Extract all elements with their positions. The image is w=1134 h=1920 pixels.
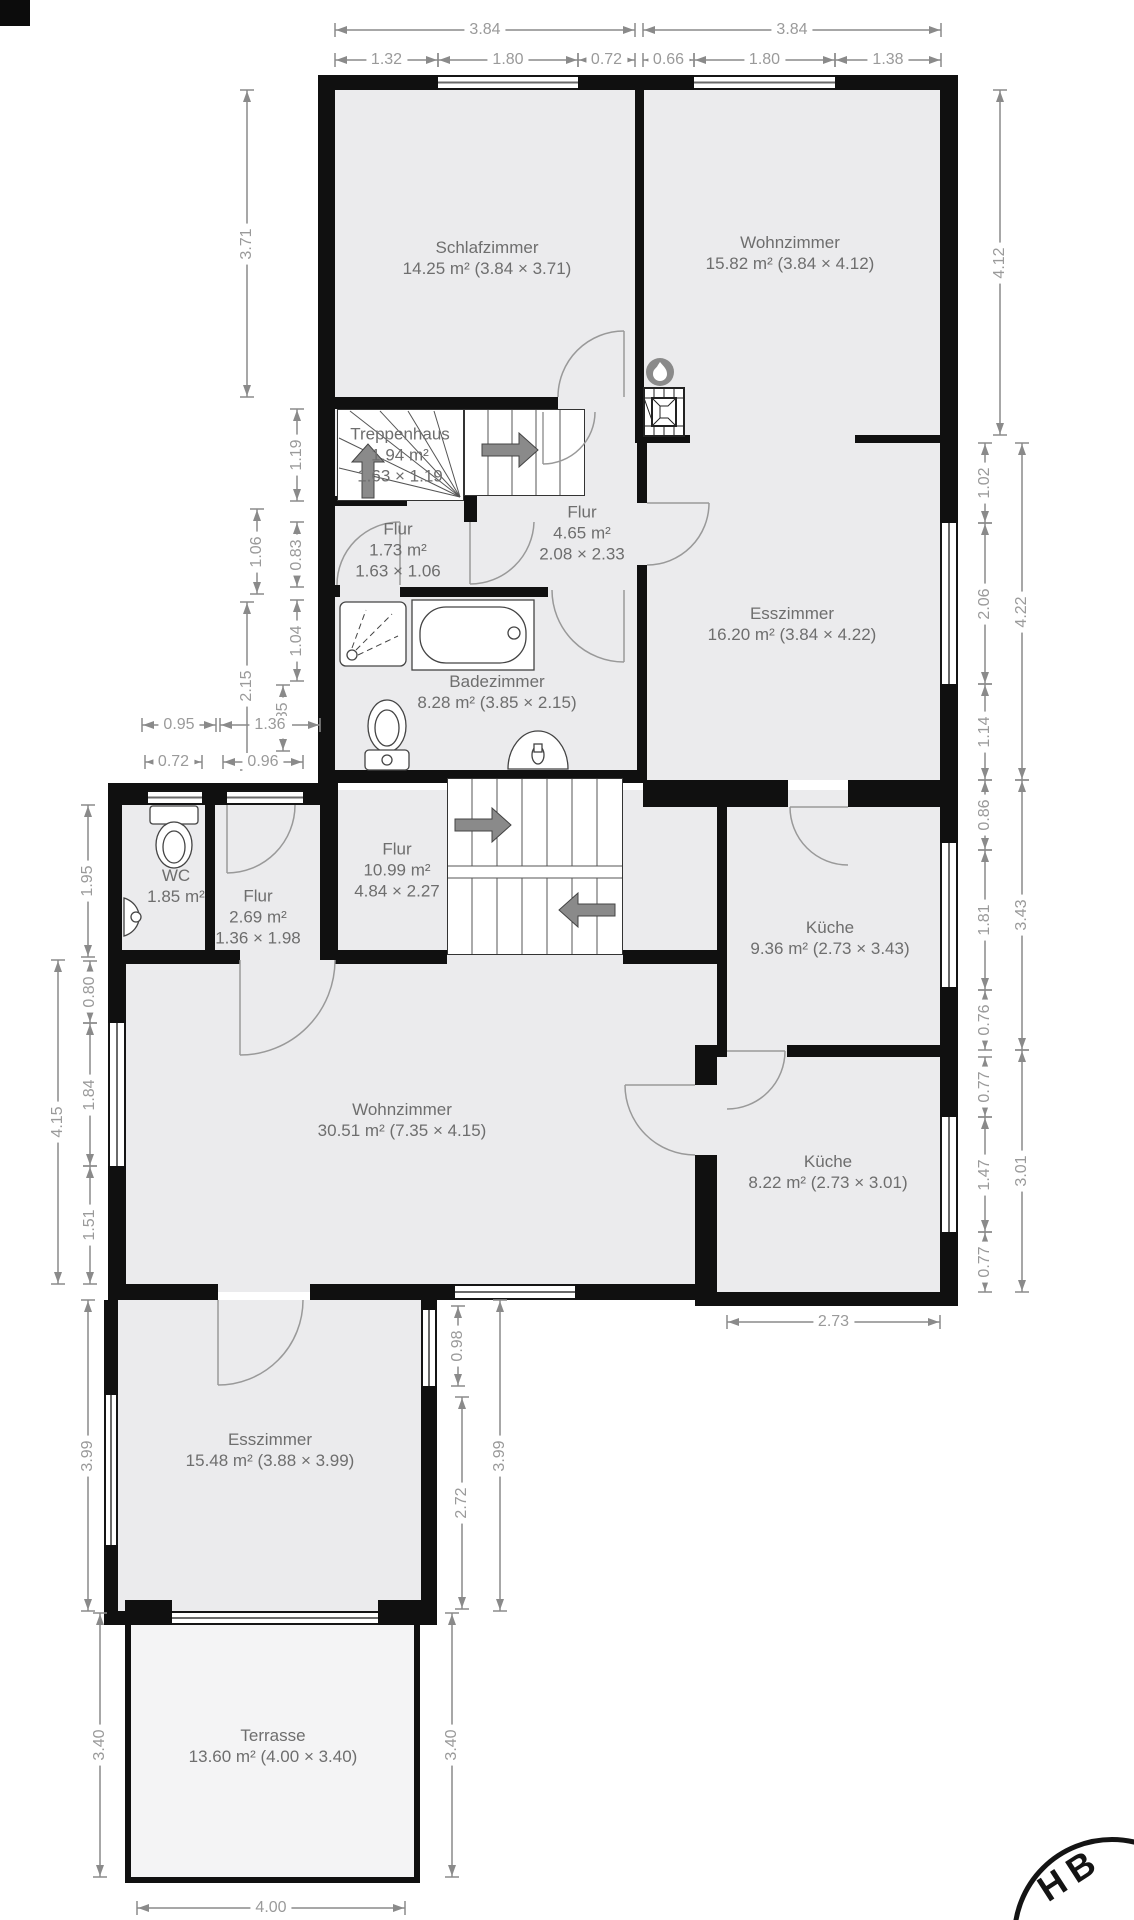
wall [623, 950, 727, 964]
dimension-label: 2.15 [238, 665, 256, 706]
window [940, 843, 958, 987]
dimension-label: 1.32 [366, 51, 407, 69]
stair-run-upper [464, 409, 585, 496]
dimension-label: 1.80 [487, 51, 528, 69]
window [227, 790, 303, 805]
room-size: 1.63 × 1.06 [355, 561, 441, 582]
dimension-label: 3.99 [79, 1435, 97, 1476]
dimension-label: 1.14 [976, 711, 994, 752]
room-label-terrasse: Terrasse13.60 m² (4.00 × 3.40) [189, 1725, 358, 1767]
wall [695, 1155, 717, 1292]
dimension-label: 2.73 [813, 1313, 854, 1331]
window [694, 75, 835, 90]
room-label-badezimmer: Badezimmer8.28 m² (3.85 × 2.15) [417, 671, 576, 713]
wall [108, 1284, 218, 1300]
room-name: Esszimmer [186, 1429, 355, 1450]
room-area: 2.69 m² [215, 907, 301, 928]
room-label-schlafzimmer: Schlafzimmer14.25 m² (3.84 × 3.71) [403, 237, 572, 279]
wall [318, 75, 958, 90]
dimension-label: 1.84 [81, 1074, 99, 1115]
terrace-wall [125, 1615, 131, 1883]
room-name: Flur [354, 839, 440, 860]
room-label-wohnzimmer-top: Wohnzimmer15.82 m² (3.84 × 4.12) [706, 232, 875, 274]
dimension-label: 1.80 [744, 51, 785, 69]
room-label-flur-og: Flur4.65 m²2.08 × 2.33 [539, 502, 625, 565]
dimension-label: 1.51 [81, 1204, 99, 1245]
wall [635, 90, 644, 443]
room-area: 10.99 m² [354, 860, 440, 881]
room-size: 1.36 × 1.98 [215, 928, 301, 949]
room-area: 1.73 m² [355, 540, 441, 561]
room-name: Terrasse [189, 1725, 358, 1746]
terrace-door-window [172, 1611, 378, 1625]
wall [643, 435, 690, 443]
wall [320, 777, 338, 960]
dimension-label: 0.98 [449, 1325, 467, 1366]
room-area: 14.25 m² (3.84 × 3.71) [403, 258, 572, 279]
window [940, 523, 958, 684]
dimension-label: 1.04 [288, 620, 306, 661]
dimension-label: 2.72 [453, 1482, 471, 1523]
dimension-label: 0.72 [153, 753, 194, 771]
room-name: WC [147, 865, 205, 886]
dimension-label: 0.96 [242, 753, 283, 771]
dimension-label: 3.43 [1013, 894, 1031, 935]
room-label-esszimmer-top: Esszimmer16.20 m² (3.84 × 4.22) [708, 603, 877, 645]
room-name: Wohnzimmer [318, 1099, 487, 1120]
dimension-label: 3.84 [771, 21, 812, 39]
stamp: HB [984, 1805, 1134, 1920]
dimension-label: 0.77 [976, 1241, 994, 1282]
dimension-label: 3.71 [238, 223, 256, 264]
dimension-label: 0.76 [976, 999, 994, 1040]
room-name: Küche [748, 1151, 907, 1172]
dimension-label: 0.80 [81, 971, 99, 1012]
stair-main [447, 778, 623, 955]
window [421, 1310, 437, 1386]
wall [400, 587, 548, 597]
dimension-label: 3.84 [464, 21, 505, 39]
wall [318, 90, 335, 783]
dimension-label: 1.47 [976, 1154, 994, 1195]
window [148, 790, 202, 805]
room-label-esszimmer-eg: Esszimmer15.48 m² (3.88 × 3.99) [186, 1429, 355, 1471]
room-label-kueche-936: Küche9.36 m² (2.73 × 3.43) [750, 917, 909, 959]
room-name: Esszimmer [708, 603, 877, 624]
room-size: 1.63 × 1.19 [350, 466, 450, 487]
room-name: Flur [215, 886, 301, 907]
room-size: 2.08 × 2.33 [539, 544, 625, 565]
room-name: Treppenhaus [350, 424, 450, 445]
dimension-label: 1.38 [867, 51, 908, 69]
wall [643, 780, 788, 807]
dimension-label: 0.86 [976, 794, 994, 835]
room-area: 1.94 m² [350, 445, 450, 466]
dimension-label: 2.06 [976, 583, 994, 624]
room-label-treppenhaus: Treppenhaus1.94 m²1.63 × 1.19 [350, 424, 450, 487]
room-area: 4.65 m² [539, 523, 625, 544]
room-area: 9.36 m² (2.73 × 3.43) [750, 938, 909, 959]
dimension-label: 1.36 [249, 716, 290, 734]
room-size: 4.84 × 2.27 [354, 881, 440, 902]
wall [108, 783, 122, 963]
wall [108, 950, 240, 964]
dimension-label: 1.81 [976, 899, 994, 940]
wall [695, 1292, 958, 1306]
wall [637, 565, 647, 780]
room-area: 30.51 m² (7.35 × 4.15) [318, 1120, 487, 1141]
room-name: Flur [539, 502, 625, 523]
room-area: 16.20 m² (3.84 × 4.22) [708, 624, 877, 645]
terrace-wall [414, 1615, 420, 1883]
room-label-kueche-822: Küche8.22 m² (2.73 × 3.01) [748, 1151, 907, 1193]
dimension-label: 3.40 [91, 1724, 109, 1765]
wall [335, 950, 447, 964]
dimension-label: 3.99 [491, 1435, 509, 1476]
dimension-label: 0.83 [288, 534, 306, 575]
window [104, 1395, 118, 1545]
room-area: 13.60 m² (4.00 × 3.40) [189, 1746, 358, 1767]
wall [848, 780, 940, 807]
dimension-label: 0.95 [158, 716, 199, 734]
floor-plan: Schlafzimmer14.25 m² (3.84 × 3.71)Wohnzi… [0, 0, 1134, 1920]
room-label-flur-269: Flur2.69 m²1.36 × 1.98 [215, 886, 301, 949]
dimension-label: 3.40 [443, 1724, 461, 1765]
room-area: 8.22 m² (2.73 × 3.01) [748, 1172, 907, 1193]
window [455, 1284, 575, 1300]
terrace-wall [378, 1600, 422, 1615]
room-area: 8.28 m² (3.85 × 2.15) [417, 692, 576, 713]
dimension-label: 0.77 [976, 1066, 994, 1107]
dimension-label: 4.22 [1013, 591, 1031, 632]
dimension-label: 1.19 [288, 434, 306, 475]
wall [637, 443, 647, 503]
room-label-wohnzimmer-eg: Wohnzimmer30.51 m² (7.35 × 4.15) [318, 1099, 487, 1141]
dimension-label: 3.01 [1013, 1150, 1031, 1191]
room-area: 15.48 m² (3.88 × 3.99) [186, 1450, 355, 1471]
room-area: 1.85 m² [147, 886, 205, 907]
dimension-label: 4.15 [49, 1101, 67, 1142]
dimension-label: 1.95 [79, 860, 97, 901]
room-label-flur-1099: Flur10.99 m²4.84 × 2.27 [354, 839, 440, 902]
wall [695, 1045, 717, 1085]
terrace-wall [125, 1600, 172, 1615]
wall [318, 585, 340, 597]
corner-mark [0, 0, 30, 26]
room-name: Wohnzimmer [706, 232, 875, 253]
wall [717, 780, 727, 1045]
room-name: Schlafzimmer [403, 237, 572, 258]
room-name: Badezimmer [417, 671, 576, 692]
window [940, 1117, 958, 1232]
wall [787, 1045, 940, 1057]
room-label-flur-klein: Flur1.73 m²1.63 × 1.06 [355, 519, 441, 582]
room-label-wc: WC1.85 m² [147, 865, 205, 907]
wall [855, 435, 940, 443]
window [438, 75, 578, 90]
room-area: 15.82 m² (3.84 × 4.12) [706, 253, 875, 274]
room-name: Küche [750, 917, 909, 938]
room-name: Flur [355, 519, 441, 540]
dimension-label: 4.12 [991, 242, 1009, 283]
wall [205, 805, 215, 955]
dimension-label: 0.72 [586, 51, 627, 69]
dimension-label: 1.06 [248, 531, 266, 572]
dimension-label: 4.00 [250, 1899, 291, 1917]
dimension-label: 1.02 [976, 462, 994, 503]
window [108, 1023, 126, 1166]
dimension-label: 0.66 [648, 51, 689, 69]
terrace-wall [125, 1877, 420, 1883]
wall [335, 397, 558, 409]
